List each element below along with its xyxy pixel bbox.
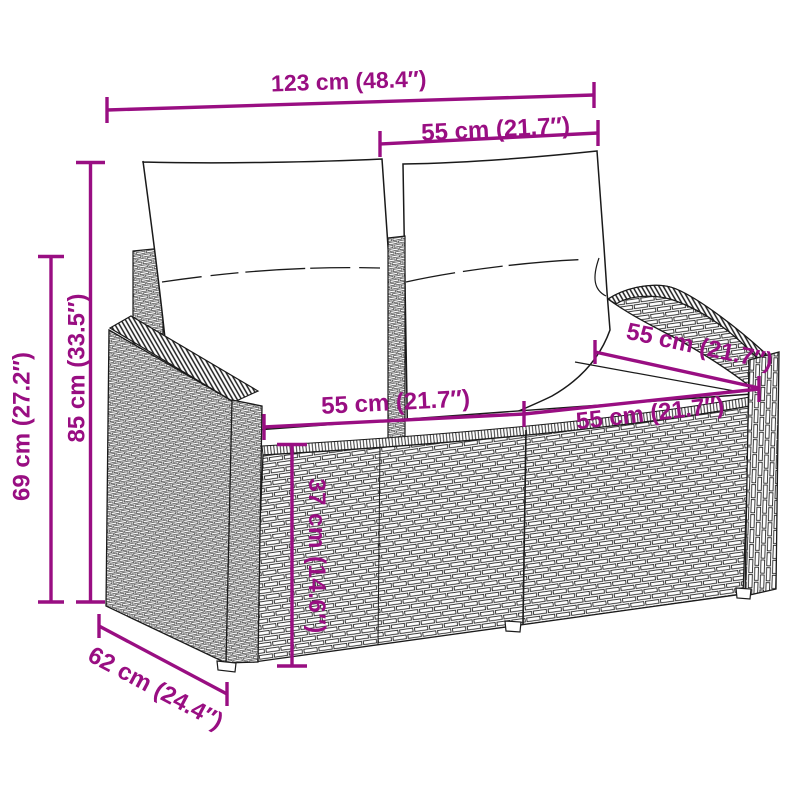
svg-text:37 cm (14.6″): 37 cm (14.6″) (303, 478, 330, 633)
svg-text:69 cm (27.2″): 69 cm (27.2″) (9, 352, 36, 501)
svg-text:123 cm (48.4″): 123 cm (48.4″) (271, 66, 427, 97)
svg-text:85 cm (33.5″): 85 cm (33.5″) (64, 294, 91, 443)
